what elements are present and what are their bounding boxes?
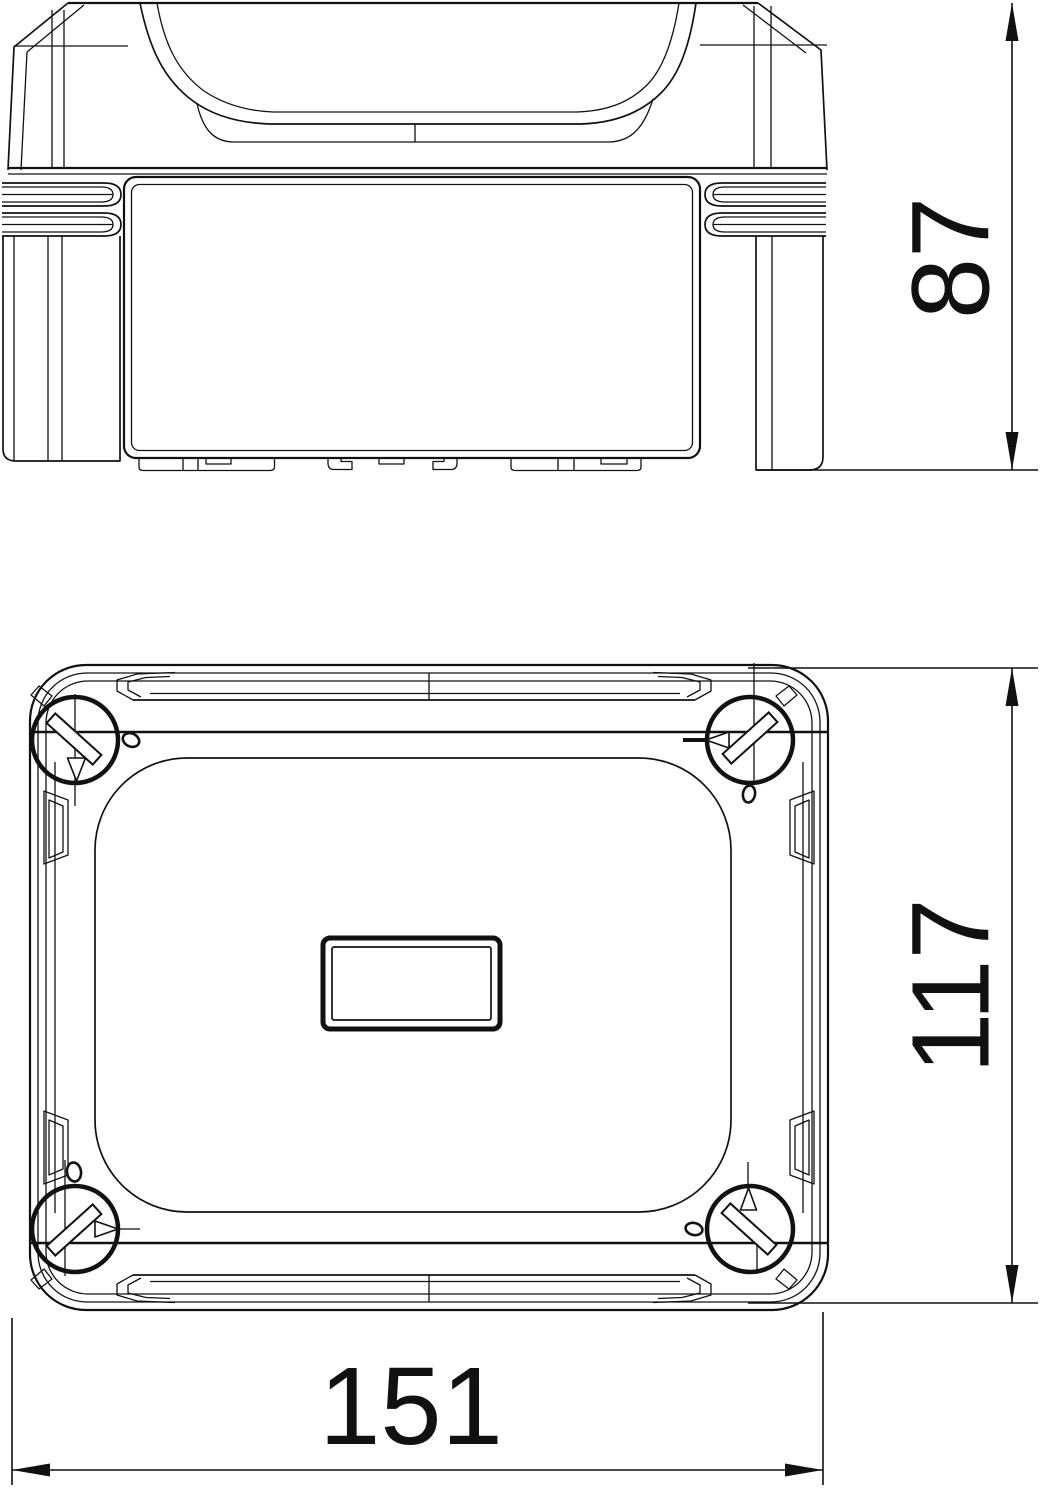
dimension-depth-value: 117 [890, 898, 1013, 1073]
arrow-up-icon [1006, 3, 1019, 41]
arrow-left-icon [12, 1464, 50, 1477]
lid-inner-panel [95, 758, 731, 1212]
lid-right-chamfer-inner [743, 5, 806, 53]
vent-hole [684, 1221, 703, 1236]
direction-triangle-icon [95, 1221, 118, 1237]
screw-slot [723, 712, 778, 763]
bottom-handle-profile [117, 1275, 711, 1303]
screw-bottom-left [32, 1160, 140, 1276]
dimension-height-value: 87 [890, 197, 1013, 319]
top-handle-profile [117, 673, 711, 701]
direction-triangle-icon [741, 1188, 757, 1210]
right-latch-ribs [705, 183, 826, 236]
vent-hole [66, 1162, 83, 1183]
plan-contour-2 [38, 673, 820, 1302]
label-field-outer [323, 938, 500, 1029]
arrow-right-icon [785, 1464, 823, 1477]
right-side-column [756, 236, 823, 470]
drawing-page: 87 117 151 [0, 0, 1044, 1500]
arrow-down-icon [1006, 432, 1019, 470]
bottom-plan-view [30, 663, 828, 1310]
screw-top-left [32, 694, 141, 806]
screw-slot [47, 713, 102, 764]
left-column-lines [14, 236, 62, 461]
dimension-depth: 117 [748, 668, 1038, 1303]
corner-boss-facets [31, 686, 797, 1289]
side-latch-bumps [44, 791, 814, 1184]
left-latch-ribs [2, 183, 121, 236]
plan-inner-walls [55, 762, 803, 1213]
dimension-width: 151 [12, 1312, 823, 1485]
plan-contour-3 [46, 681, 812, 1294]
handle-recess-inner [157, 3, 679, 112]
arrow-up-icon [1006, 668, 1019, 706]
screw-slot [722, 1203, 777, 1254]
dimension-width-value: 151 [319, 1345, 503, 1468]
direction-triangle-icon [68, 758, 86, 781]
lid-right-chamfer [758, 3, 827, 170]
handle-recess-floor [197, 99, 653, 142]
label-field-inner [332, 947, 491, 1020]
body-panel-inner [132, 185, 693, 451]
technical-drawing: 87 117 151 [0, 0, 1044, 1500]
vent-hole [742, 785, 757, 804]
lid-corner-posts [52, 6, 771, 168]
arrow-down-icon [1006, 1265, 1019, 1303]
screw-bottom-right [684, 1162, 793, 1274]
vent-hole [121, 731, 142, 750]
mounting-feet [139, 458, 641, 471]
side-elevation-view [2, 3, 827, 471]
body-panel-outer [124, 177, 700, 458]
lid-left-chamfer [8, 3, 68, 170]
